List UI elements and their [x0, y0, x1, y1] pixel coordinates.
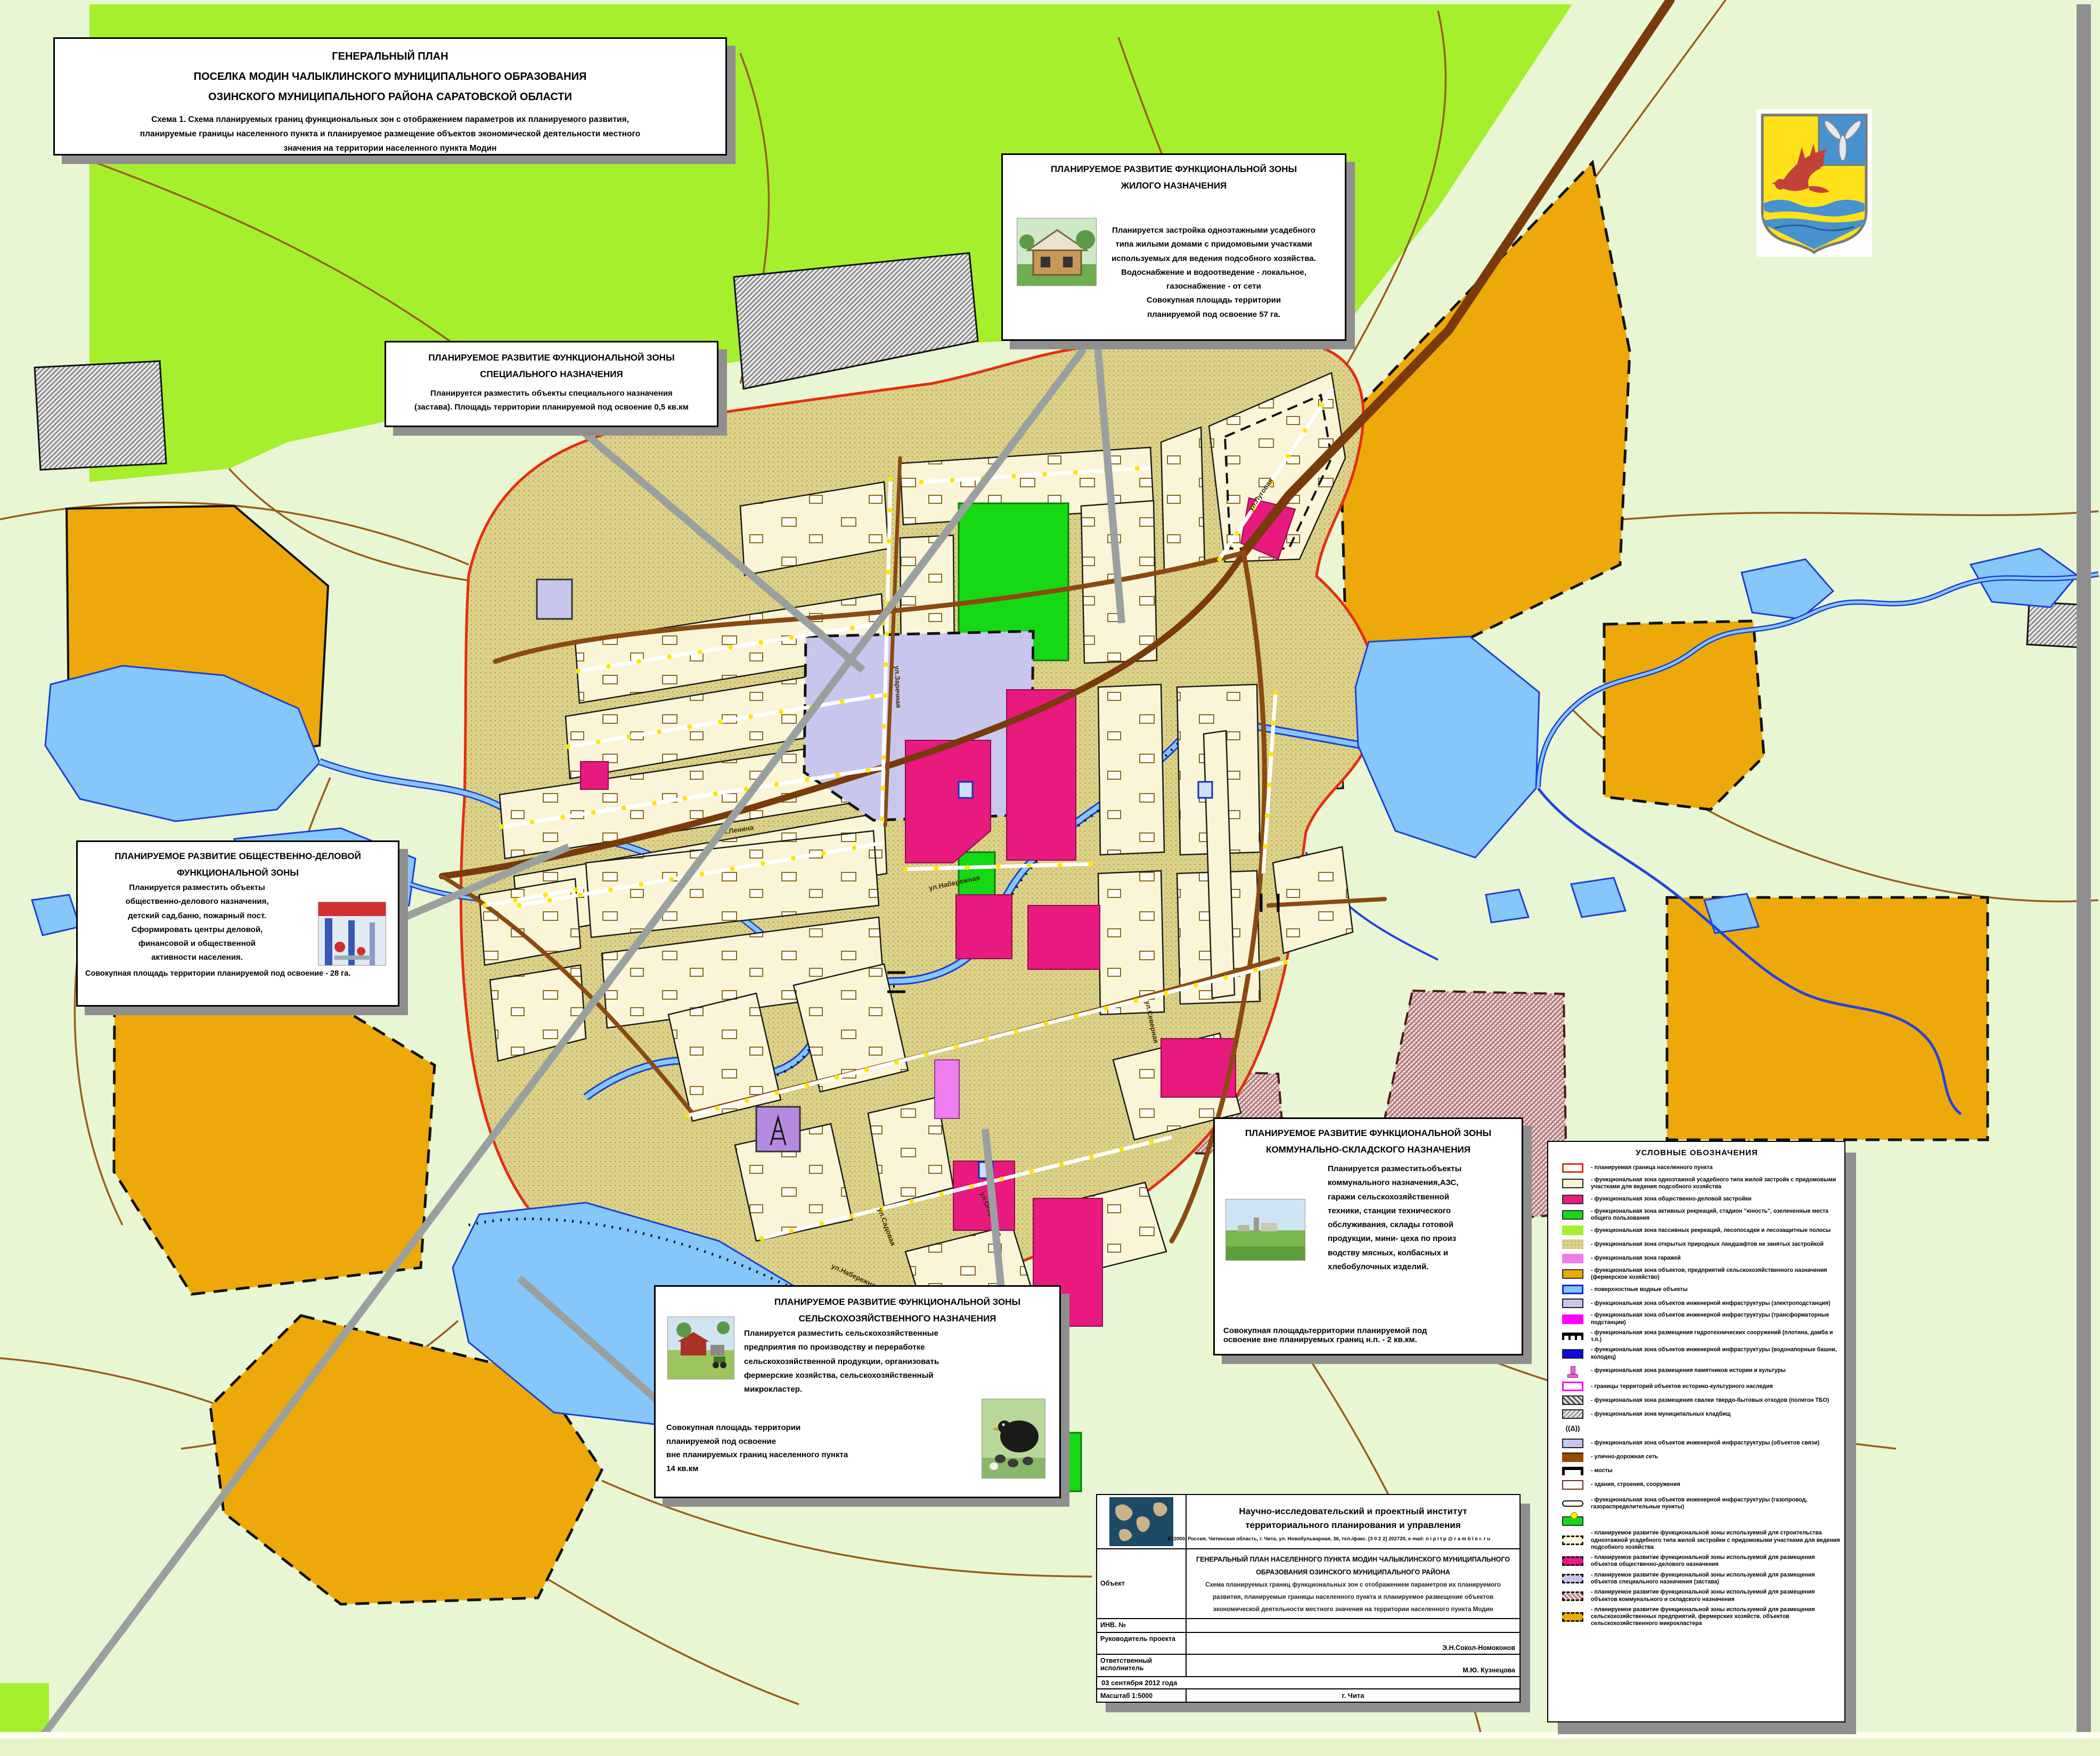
legend-label: - функциональная зона общественно-делово…: [1591, 1196, 1840, 1203]
legend-label: - функциональная зона пассивных рекреаци…: [1591, 1227, 1840, 1234]
landfill-swatch: [1562, 1395, 1583, 1405]
planned-special-swatch: [1562, 1574, 1583, 1583]
legend-row: - планируемое развитие функциональной зо…: [1554, 1554, 1840, 1568]
water-swatch: [1562, 1285, 1583, 1294]
coat-of-arms: [1756, 109, 1872, 257]
legend-row: - функциональная зона объектов инженерно…: [1554, 1298, 1840, 1309]
scale-label: Масштаб 1:5000: [1097, 1689, 1187, 1702]
legend-row: - здания, строения, сооружения: [1554, 1480, 1840, 1490]
object-title: ГЕНЕРАЛЬНЫЙ ПЛАН НАСЕЛЕННОГО ПУНКТА МОДИ…: [1192, 1554, 1514, 1579]
callout-agricultural-body: Планируется разместить сельскохозяйствен…: [744, 1327, 1051, 1396]
legend-title: УСЛОВНЫЕ ОБОЗНАЧЕНИЯ: [1554, 1148, 1840, 1157]
callout-communal: ПЛАНИРУЕМОЕ РАЗВИТИЕ ФУНКЦИОНАЛЬНОЙ ЗОНЫ…: [1213, 1117, 1523, 1355]
legend-row: - функциональная зона муниципальных клад…: [1554, 1409, 1840, 1419]
stamp-city: г. Чита: [1187, 1689, 1519, 1702]
lead-label: Руководитель проекта: [1097, 1633, 1187, 1654]
legend-label: - планируемое развитие функциональной зо…: [1591, 1530, 1840, 1551]
legend-row: - функциональная зона пассивных рекреаци…: [1554, 1225, 1840, 1236]
legend-label: - функциональная зона размещения свалки …: [1591, 1397, 1840, 1404]
legend-row: - функциональная зона открытых природных…: [1554, 1239, 1840, 1249]
legend-label: - поверхностные водные объекты: [1591, 1286, 1840, 1293]
legend-row: - функциональная зона активных рекреаций…: [1554, 1208, 1840, 1222]
garage-zone: [935, 1060, 959, 1118]
legend-row: - поверхностные водные объекты: [1554, 1284, 1840, 1295]
callout-public-business-title: ПЛАНИРУЕМОЕ РАЗВИТИЕ ОБЩЕСТВЕННО-ДЕЛОВОЙ…: [85, 848, 390, 881]
passive-recreation-swatch: [1562, 1226, 1583, 1235]
callout-public-business-footer: Совокупная площадь территории планируемо…: [85, 969, 390, 978]
legend-label: - планируемая граница населенного пункта: [1591, 1164, 1840, 1171]
legend-row: - функциональная зона общественно-делово…: [1554, 1194, 1840, 1205]
monument-icon: [1562, 1364, 1583, 1378]
plan-subtitle: Схема 1. Схема планируемых границ функци…: [69, 112, 712, 156]
legend-row: - функциональная зона объектов, предприя…: [1554, 1267, 1840, 1281]
legend-row: - планируемая граница населенного пункта: [1554, 1163, 1840, 1173]
gas-pipeline-swatch: [1562, 1500, 1583, 1507]
callout-residential: ПЛАНИРУЕМОЕ РАЗВИТИЕ ФУНКЦИОНАЛЬНОЙ ЗОНЫ…: [1001, 153, 1346, 341]
road-network-swatch: [1562, 1452, 1583, 1462]
stamp-date: 03 сентября 2012 года: [1097, 1677, 1519, 1689]
legend-label: - границы территорий объектов историко-к…: [1591, 1383, 1840, 1390]
legend-label: - функциональная зона объектов инженерно…: [1591, 1312, 1840, 1326]
callout-special: ПЛАНИРУЕМОЕ РАЗВИТИЕ ФУНКЦИОНАЛЬНОЙ ЗОНЫ…: [385, 341, 718, 427]
resp-label: Ответственный исполнитель: [1097, 1655, 1187, 1676]
plan-title-line1: ГЕНЕРАЛЬНЫЙ ПЛАН: [69, 46, 712, 67]
legend-label: - функциональная зона открытых природных…: [1591, 1241, 1840, 1248]
legend-label: - планируемое развитие функциональной зо…: [1591, 1572, 1840, 1586]
legend-row: - планируемое развитие функциональной зо…: [1554, 1589, 1840, 1603]
legend-row: [1554, 1516, 1840, 1526]
legend-row: ((Δ)): [1554, 1423, 1840, 1434]
object-label: Объект: [1097, 1549, 1187, 1618]
legend-row: - функциональная зона размещения свалки …: [1554, 1395, 1840, 1406]
callout-residential-body: Планируется застройка одноэтажными усаде…: [1090, 224, 1337, 322]
legend-row: - функциональная зона гаражей: [1554, 1253, 1840, 1264]
building-swatch: [1562, 1480, 1583, 1490]
callout-public-business: ПЛАНИРУЕМОЕ РАЗВИТИЕ ОБЩЕСТВЕННО-ДЕЛОВОЙ…: [76, 840, 399, 1007]
stamp-block: Научно-исследовательский и проектный инс…: [1096, 1494, 1521, 1703]
legend-row: - функциональная зона объектов инженерно…: [1554, 1312, 1840, 1326]
legend-label: - функциональная зона гаражей: [1591, 1255, 1840, 1262]
legend-row: - функциональная зона одноэтажной усадеб…: [1554, 1177, 1840, 1190]
comms-swatch: [1562, 1439, 1583, 1448]
legend-label: - функциональная зона объектов, предприя…: [1591, 1267, 1840, 1281]
legend-row: - улично-дорожная сеть: [1554, 1452, 1840, 1463]
garage-swatch: [1562, 1254, 1583, 1263]
legend-row: - функциональная зона объектов инженерно…: [1554, 1346, 1840, 1360]
legend-label: - функциональная зона объектов инженерно…: [1591, 1440, 1840, 1447]
legend: УСЛОВНЫЕ ОБОЗНАЧЕНИЯ - планируемая грани…: [1547, 1141, 1845, 1722]
public-business-swatch: [1562, 1195, 1583, 1204]
callout-communal-body: Планируется разместитьобъекты коммунальн…: [1328, 1162, 1515, 1274]
stamp-header: Научно-исследовательский и проектный инс…: [1097, 1495, 1519, 1549]
legend-row: - мосты: [1554, 1466, 1840, 1476]
legend-row: - планируемое развитие функциональной зо…: [1554, 1530, 1840, 1551]
legend-row: - функциональная зона размещения памятни…: [1554, 1364, 1840, 1378]
heritage-boundary-swatch: [1562, 1382, 1583, 1391]
legend-row: - планируемое развитие функциональной зо…: [1554, 1606, 1840, 1628]
transformer-swatch: [1562, 1314, 1583, 1324]
institute-name: Научно-исследовательский и проектный инс…: [1192, 1497, 1514, 1532]
title-box: ГЕНЕРАЛЬНЫЙ ПЛАН ПОСЕЛКА МОДИН ЧАЛЫКЛИНС…: [53, 37, 727, 156]
callout-agricultural-title: ПЛАНИРУЕМОЕ РАЗВИТИЕ ФУНКЦИОНАЛЬНОЙ ЗОНЫ…: [744, 1294, 1051, 1327]
callout-communal-footer: Совокупная площадьтерритории планируемой…: [1223, 1326, 1427, 1344]
legend-label: - функциональная зона одноэтажной усадеб…: [1591, 1177, 1840, 1190]
legend-row: - функциональная зона размещения гидроте…: [1554, 1329, 1840, 1343]
callout-special-body: Планируется разместить объекты специальн…: [391, 387, 712, 415]
legend-label: - планируемое развитие функциональной зо…: [1591, 1589, 1840, 1603]
public-building-photo: [318, 902, 386, 966]
legend-label: - планируемое развитие функциональной зо…: [1591, 1606, 1840, 1628]
legend-label: - функциональная зона муниципальных клад…: [1591, 1411, 1840, 1418]
institute-address: 672000, Россия, Читинская область, г. Чи…: [1107, 1536, 1551, 1542]
legend-label: - функциональная зона объектов инженерно…: [1591, 1346, 1840, 1360]
inv-label: ИНВ. №: [1097, 1619, 1187, 1632]
boundary-swatch: [1562, 1163, 1583, 1173]
legend-label: - планируемое развитие функциональной зо…: [1591, 1554, 1840, 1568]
stamp-lead-row: Руководитель проекта Э.Н.Сокол-Номоконов: [1097, 1633, 1519, 1655]
legend-row: - границы территорий объектов историко-к…: [1554, 1381, 1840, 1392]
substation-swatch: [1562, 1298, 1583, 1308]
planned-communal-swatch: [1562, 1591, 1583, 1601]
legend-label: - функциональная зона объектов инженерно…: [1591, 1497, 1840, 1510]
radio-tower-icon: ((Δ)): [1562, 1423, 1583, 1434]
bridge-swatch: [1562, 1467, 1583, 1475]
legend-label: - улично-дорожная сеть: [1591, 1453, 1840, 1460]
svg-text:ул.Заречная: ул.Заречная: [893, 666, 903, 708]
object-subtitle: Схема планируемых границ функциональных …: [1192, 1579, 1514, 1616]
general-plan-sheet: ул.Ленина ул.Заречная ул.Луговая ул.Набе…: [0, 0, 2100, 1756]
plan-title-line2: ПОСЕЛКА МОДИН ЧАЛЫКЛИНСКОГО МУНИЦИПАЛЬНО…: [69, 67, 712, 87]
house-photo: [1017, 218, 1097, 286]
planned-farm-swatch: [1562, 1612, 1583, 1622]
legend-label: - здания, строения, сооружения: [1591, 1481, 1840, 1488]
farm-photo: [667, 1317, 734, 1379]
plan-title-line3: ОЗИНСКОГО МУНИЦИПАЛЬНОГО РАЙОНА САРАТОВС…: [69, 87, 712, 107]
callout-communal-title: ПЛАНИРУЕМОЕ РАЗВИТИЕ ФУНКЦИОНАЛЬНОЙ ЗОНЫ…: [1221, 1125, 1515, 1158]
stamp-inv-row: ИНВ. №: [1097, 1619, 1519, 1633]
water-tower-swatch: [1562, 1349, 1583, 1359]
legend-label: - функциональная зона размещения гидроте…: [1591, 1329, 1840, 1343]
resp-name: М.Ю. Кузнецова: [1187, 1655, 1519, 1676]
callout-special-title: ПЛАНИРУЕМОЕ РАЗВИТИЕ ФУНКЦИОНАЛЬНОЙ ЗОНЫ…: [391, 350, 712, 382]
legend-label: - функциональная зона размещения памятни…: [1591, 1367, 1840, 1374]
stamp-object-row: Объект ГЕНЕРАЛЬНЫЙ ПЛАН НАСЕЛЕННОГО ПУНК…: [1097, 1549, 1519, 1619]
residential-swatch: [1562, 1179, 1583, 1188]
cemetery-swatch: [1562, 1409, 1583, 1419]
callout-public-business-body: Планируется разместить объекты обществен…: [85, 881, 309, 965]
planned-residential-swatch: [1562, 1536, 1583, 1545]
legend-label: - функциональная зона активных рекреаций…: [1591, 1208, 1840, 1222]
callout-agricultural: ПЛАНИРУЕМОЕ РАЗВИТИЕ ФУНКЦИОНАЛЬНОЙ ЗОНЫ…: [654, 1285, 1061, 1498]
farm-swatch: [1562, 1269, 1583, 1279]
coat-of-arms-shield: [1759, 112, 1869, 254]
active-recreation-swatch: [1562, 1210, 1583, 1220]
dam-icon: [1562, 1333, 1583, 1340]
stamp-resp-row: Ответственный исполнитель М.Ю. Кузнецова: [1097, 1655, 1519, 1677]
planned-public-business-swatch: [1562, 1556, 1583, 1566]
open-landscape-swatch: [1562, 1239, 1583, 1249]
legend-label: - мосты: [1591, 1467, 1840, 1474]
callout-agricultural-footer: Совокупная площадь территории планируемо…: [666, 1421, 848, 1475]
stamp-scale-row: Масштаб 1:5000 г. Чита: [1097, 1689, 1519, 1702]
field-photo: [1225, 1199, 1305, 1261]
legend-row: - функциональная зона объектов инженерно…: [1554, 1497, 1840, 1510]
legend-row: - функциональная зона объектов инженерно…: [1554, 1438, 1840, 1449]
legend-label: - функциональная зона объектов инженерно…: [1591, 1300, 1840, 1307]
callout-residential-title: ПЛАНИРУЕМОЕ РАЗВИТИЕ ФУНКЦИОНАЛЬНОЙ ЗОНЫ…: [1010, 161, 1337, 194]
legend-row: - планируемое развитие функциональной зо…: [1554, 1572, 1840, 1586]
lead-name: Э.Н.Сокол-Номоконов: [1187, 1633, 1519, 1654]
chicken-photo: [982, 1399, 1045, 1479]
